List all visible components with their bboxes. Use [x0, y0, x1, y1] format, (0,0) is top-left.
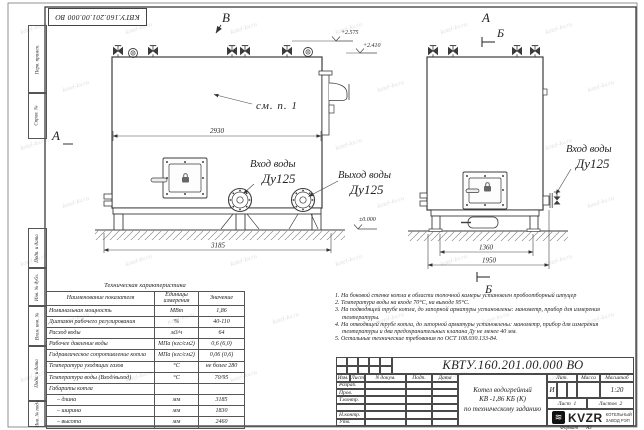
- valve-icon: [114, 46, 123, 57]
- sig-row-cell: [432, 389, 458, 396]
- company-name: КОТЕЛЬНЫЙ ЗАВОД РЭП: [606, 412, 632, 422]
- doc-title-line2: КВ -1,86 КБ (К): [479, 395, 526, 404]
- valve-icon: [429, 46, 438, 57]
- sheets-value: 2: [620, 401, 623, 407]
- sig-row-cell: [406, 419, 432, 426]
- lit-cell-3: [567, 382, 577, 399]
- sig-row-cell: [365, 396, 406, 403]
- spec-header-cell: Наименование показателя: [47, 292, 155, 306]
- spec-cell: Температура уходящих газов: [47, 361, 155, 372]
- section-b-bottom-mark: [477, 272, 490, 282]
- spec-cell: 0,6 (6,0): [199, 339, 245, 350]
- spec-row: Рабочее давление водыМПа (кгс/см2)0,6 (6…: [47, 339, 245, 350]
- spec-cell: мм: [155, 395, 199, 406]
- revision-cell: [358, 357, 369, 366]
- elev-top: +2.575: [341, 30, 359, 36]
- valve-icon: [531, 46, 540, 57]
- spec-cell: мм: [155, 406, 199, 417]
- kvzr-logo-word: KVZR: [568, 411, 603, 425]
- sig-row-label: [336, 404, 365, 411]
- spec-cell: 1830: [199, 406, 245, 417]
- kvzr-logo-icon: ≋: [552, 411, 565, 424]
- spec-row: Габариты котла: [47, 383, 245, 394]
- spec-cell: м3/ч: [155, 327, 199, 338]
- revision-cell: [380, 357, 392, 366]
- sig-row-label: Н.контр.: [336, 411, 365, 418]
- elev-mid: +2.410: [363, 42, 381, 49]
- title-block: КВТУ.160.201.00.000 ВО Изм. Лист N докум…: [336, 357, 634, 426]
- sig-row-cell: [365, 419, 406, 426]
- flue-outlet-elbow: [319, 71, 349, 135]
- frame-label-vzam-inv: Взам. инв. №: [28, 305, 47, 347]
- spec-row: Диапазон рабочего регулирования%40-110: [47, 316, 245, 327]
- top-port-left: [129, 49, 138, 58]
- format-label: ФорматА3: [560, 426, 600, 430]
- valve-icon: [513, 46, 522, 57]
- spec-header-row: Наименование показателяЕдиницы измерения…: [47, 292, 245, 306]
- spec-cell: 40-110: [199, 316, 245, 327]
- note-item: 4. На отводящей трубе котла, до запорной…: [335, 322, 633, 336]
- inlet-label-2: Ду125: [260, 171, 296, 186]
- sig-row-cell: [432, 382, 458, 389]
- spec-cell: %: [155, 316, 199, 327]
- valve-icon: [149, 46, 158, 57]
- spec-table: Наименование показателяЕдиницы измерения…: [46, 291, 245, 429]
- sig-row-label: Т.контр.: [336, 396, 365, 403]
- spec-row: Расход водым3/ч64: [47, 327, 245, 338]
- spec-cell: Гидравлическое сопротивление котла: [47, 350, 155, 361]
- ground-hatching: [95, 230, 568, 241]
- inlet2-label-1: Вход воды: [566, 144, 612, 155]
- spec-row: – длинамм3185: [47, 395, 245, 406]
- scale-header: Масштаб: [600, 374, 634, 382]
- view-a-label: А: [481, 10, 490, 25]
- sig-row-cell: [365, 382, 406, 389]
- dim-1950: 1950: [482, 257, 497, 265]
- valve-icon: [228, 46, 237, 57]
- spec-row: Температура уходящих газов°Сне более 280: [47, 361, 245, 372]
- spec-header-cell: Единицы измерения: [155, 292, 199, 306]
- sig-row-cell: [432, 404, 458, 411]
- revision-cell: [380, 366, 392, 375]
- col-izm: Изм.: [336, 374, 350, 382]
- view-a-side-label: А: [51, 128, 60, 143]
- spec-table-block: Техническая характеристика Наименование …: [46, 282, 244, 429]
- frame-label-podp-data-2: Подп. и дата: [28, 345, 47, 402]
- spec-cell: 64: [199, 327, 245, 338]
- spec-row: – ширинамм1830: [47, 406, 245, 417]
- frame-label-perv-primen: Перв. примен.: [28, 25, 47, 94]
- sheets-label: Листов: [599, 401, 617, 407]
- section-b-top-mark: [482, 37, 495, 47]
- spec-cell: 3185: [199, 395, 245, 406]
- boiler-end-view: [420, 57, 561, 232]
- sheets-cell: Листов 2: [587, 398, 634, 409]
- note-item: 5. Остальные технические требования по О…: [335, 336, 633, 343]
- mass-value: [577, 382, 600, 399]
- sig-row-label: Утв.: [336, 419, 365, 426]
- door-handle: [466, 189, 479, 193]
- doc-title-line1: Котел водогрейный: [473, 386, 532, 395]
- section-b-top-label: Б: [496, 26, 504, 40]
- spec-row: Температура воды (Вход/выход)°С70/95: [47, 372, 245, 383]
- sig-row-cell: [365, 411, 406, 418]
- boiler-side-view: [104, 57, 349, 230]
- lit-value: И: [547, 382, 557, 399]
- lit-cell-2: [557, 382, 567, 399]
- top-port-right: [304, 48, 313, 57]
- sig-row-cell: [432, 419, 458, 426]
- valve-icon: [449, 46, 458, 57]
- sig-row-label: Пров.: [336, 389, 365, 396]
- dim-1360: 1360: [479, 244, 494, 252]
- spec-cell: – ширина: [47, 406, 155, 417]
- sheet-label: Лист: [558, 401, 571, 407]
- scale-value: 1:20: [600, 382, 634, 399]
- revision-cell: [369, 366, 380, 375]
- frame-label-sprav: Справ. №: [28, 92, 47, 139]
- sig-row-cell: [406, 382, 432, 389]
- revision-cell: [347, 366, 358, 375]
- doc-title-line3: по техническому заданию: [464, 405, 541, 414]
- lit-header: Лит.: [547, 374, 577, 382]
- frame-label-inv-podl: Инв. № подл.: [28, 400, 47, 427]
- end-inlet-stub: [543, 192, 561, 208]
- mass-header: Масса: [577, 374, 600, 382]
- drawing-sheet: kotel-kv.rukotel-kv.rukotel-kv.rukotel-k…: [0, 0, 644, 430]
- spec-cell: Температура воды (Вход/выход): [47, 372, 155, 383]
- burner-plate: [468, 217, 498, 228]
- spec-cell: Рабочее давление воды: [47, 339, 155, 350]
- sheet-value: 1: [573, 401, 576, 407]
- frame-label-podp-data-1: Подп. и дата: [28, 228, 47, 269]
- outlet-label-2: Ду125: [348, 182, 384, 197]
- outlet-label-1: Выход воды: [338, 170, 391, 181]
- spec-table-title: Техническая характеристика: [46, 282, 244, 291]
- sig-row-cell: [406, 389, 432, 396]
- view-b-arrow: [216, 25, 221, 33]
- dim-2930: 2930: [210, 127, 225, 135]
- note-item: 3. На подводящей трубе котла, до запорно…: [335, 307, 633, 321]
- top-doc-number-stamp: КВТУ.160.201.00.000 ВО: [48, 8, 147, 26]
- sig-row-cell: [406, 396, 432, 403]
- door-handle: [151, 178, 167, 182]
- spec-cell: Габариты котла: [47, 383, 155, 394]
- revision-cell: [369, 357, 380, 366]
- spec-cell: Диапазон рабочего регулирования: [47, 316, 155, 327]
- spec-cell: МПа (кгс/см2): [155, 339, 199, 350]
- view-b-label: В: [222, 10, 230, 25]
- spec-cell: 2460: [199, 417, 245, 428]
- spec-cell: Расход воды: [47, 327, 155, 338]
- inlet-label-1: Вход воды: [250, 159, 296, 170]
- spec-cell: – высота: [47, 417, 155, 428]
- col-ndokum: N докум.: [365, 374, 406, 382]
- top-valves: [114, 46, 540, 57]
- valve-icon: [283, 46, 292, 57]
- revision-cell: [336, 366, 347, 375]
- sig-row-cell: [432, 411, 458, 418]
- spec-cell: МВт: [155, 305, 199, 316]
- sig-row-cell: [365, 404, 406, 411]
- spec-row: Номинальная мощностьМВт1,86: [47, 305, 245, 316]
- company-cell: ≋ KVZR КОТЕЛЬНЫЙ ЗАВОД РЭП: [547, 409, 634, 426]
- spec-cell: МПа (кгс/см2): [155, 350, 199, 361]
- spec-cell: мм: [155, 417, 199, 428]
- spec-header-cell: Значение: [199, 292, 245, 306]
- spec-cell: не более 280: [199, 361, 245, 372]
- doc-number: КВТУ.160.201.00.000 ВО: [392, 357, 634, 374]
- spec-cell: °С: [155, 361, 199, 372]
- boiler-base-left: [113, 208, 321, 230]
- sig-row-cell: [406, 411, 432, 418]
- valve-icon: [241, 46, 250, 57]
- spec-cell: 1,86: [199, 305, 245, 316]
- spec-cell: [155, 383, 199, 394]
- sig-row-cell: [432, 396, 458, 403]
- spec-cell: Номинальная мощность: [47, 305, 155, 316]
- see-note-ref: см. п. 1: [256, 100, 298, 112]
- col-list: Лист: [350, 374, 365, 382]
- side-wall-stubs: [104, 194, 112, 206]
- spec-cell: 0,06 (0,6): [199, 350, 245, 361]
- inspection-door-end: [463, 172, 507, 209]
- sig-row-cell: [365, 389, 406, 396]
- sig-row-label: Разраб.: [336, 382, 365, 389]
- valve-icon: [554, 192, 561, 205]
- spec-row: Гидравлическое сопротивление котлаМПа (к…: [47, 350, 245, 361]
- technical-notes: 1. На боковой стенке котла в области топ…: [335, 293, 633, 343]
- spec-cell: 70/95: [199, 372, 245, 383]
- col-data: Дата: [432, 374, 458, 382]
- boiler-base-right: [429, 210, 540, 232]
- spec-cell: – длина: [47, 395, 155, 406]
- col-podp: Подп.: [406, 374, 432, 382]
- dim-3185: 3185: [210, 242, 226, 250]
- revision-cell: [336, 357, 347, 366]
- inlet2-label-2: Ду125: [574, 156, 610, 171]
- frame-label-inv-dubl: Инв. № дубл.: [28, 267, 47, 307]
- doc-title-cell: Котел водогрейный КВ -1,86 КБ (К) по тех…: [458, 374, 547, 426]
- elev-zero: ±0.000: [359, 217, 376, 223]
- spec-cell: °С: [155, 372, 199, 383]
- revision-cell: [358, 366, 369, 375]
- inlet-flange: [229, 189, 252, 212]
- spec-row: – высотамм2460: [47, 417, 245, 428]
- spec-cell: [199, 383, 245, 394]
- outlet-flange: [292, 189, 315, 212]
- sig-row-cell: [406, 404, 432, 411]
- sheet-cell: Лист 1: [547, 398, 587, 409]
- revision-cell: [347, 357, 358, 366]
